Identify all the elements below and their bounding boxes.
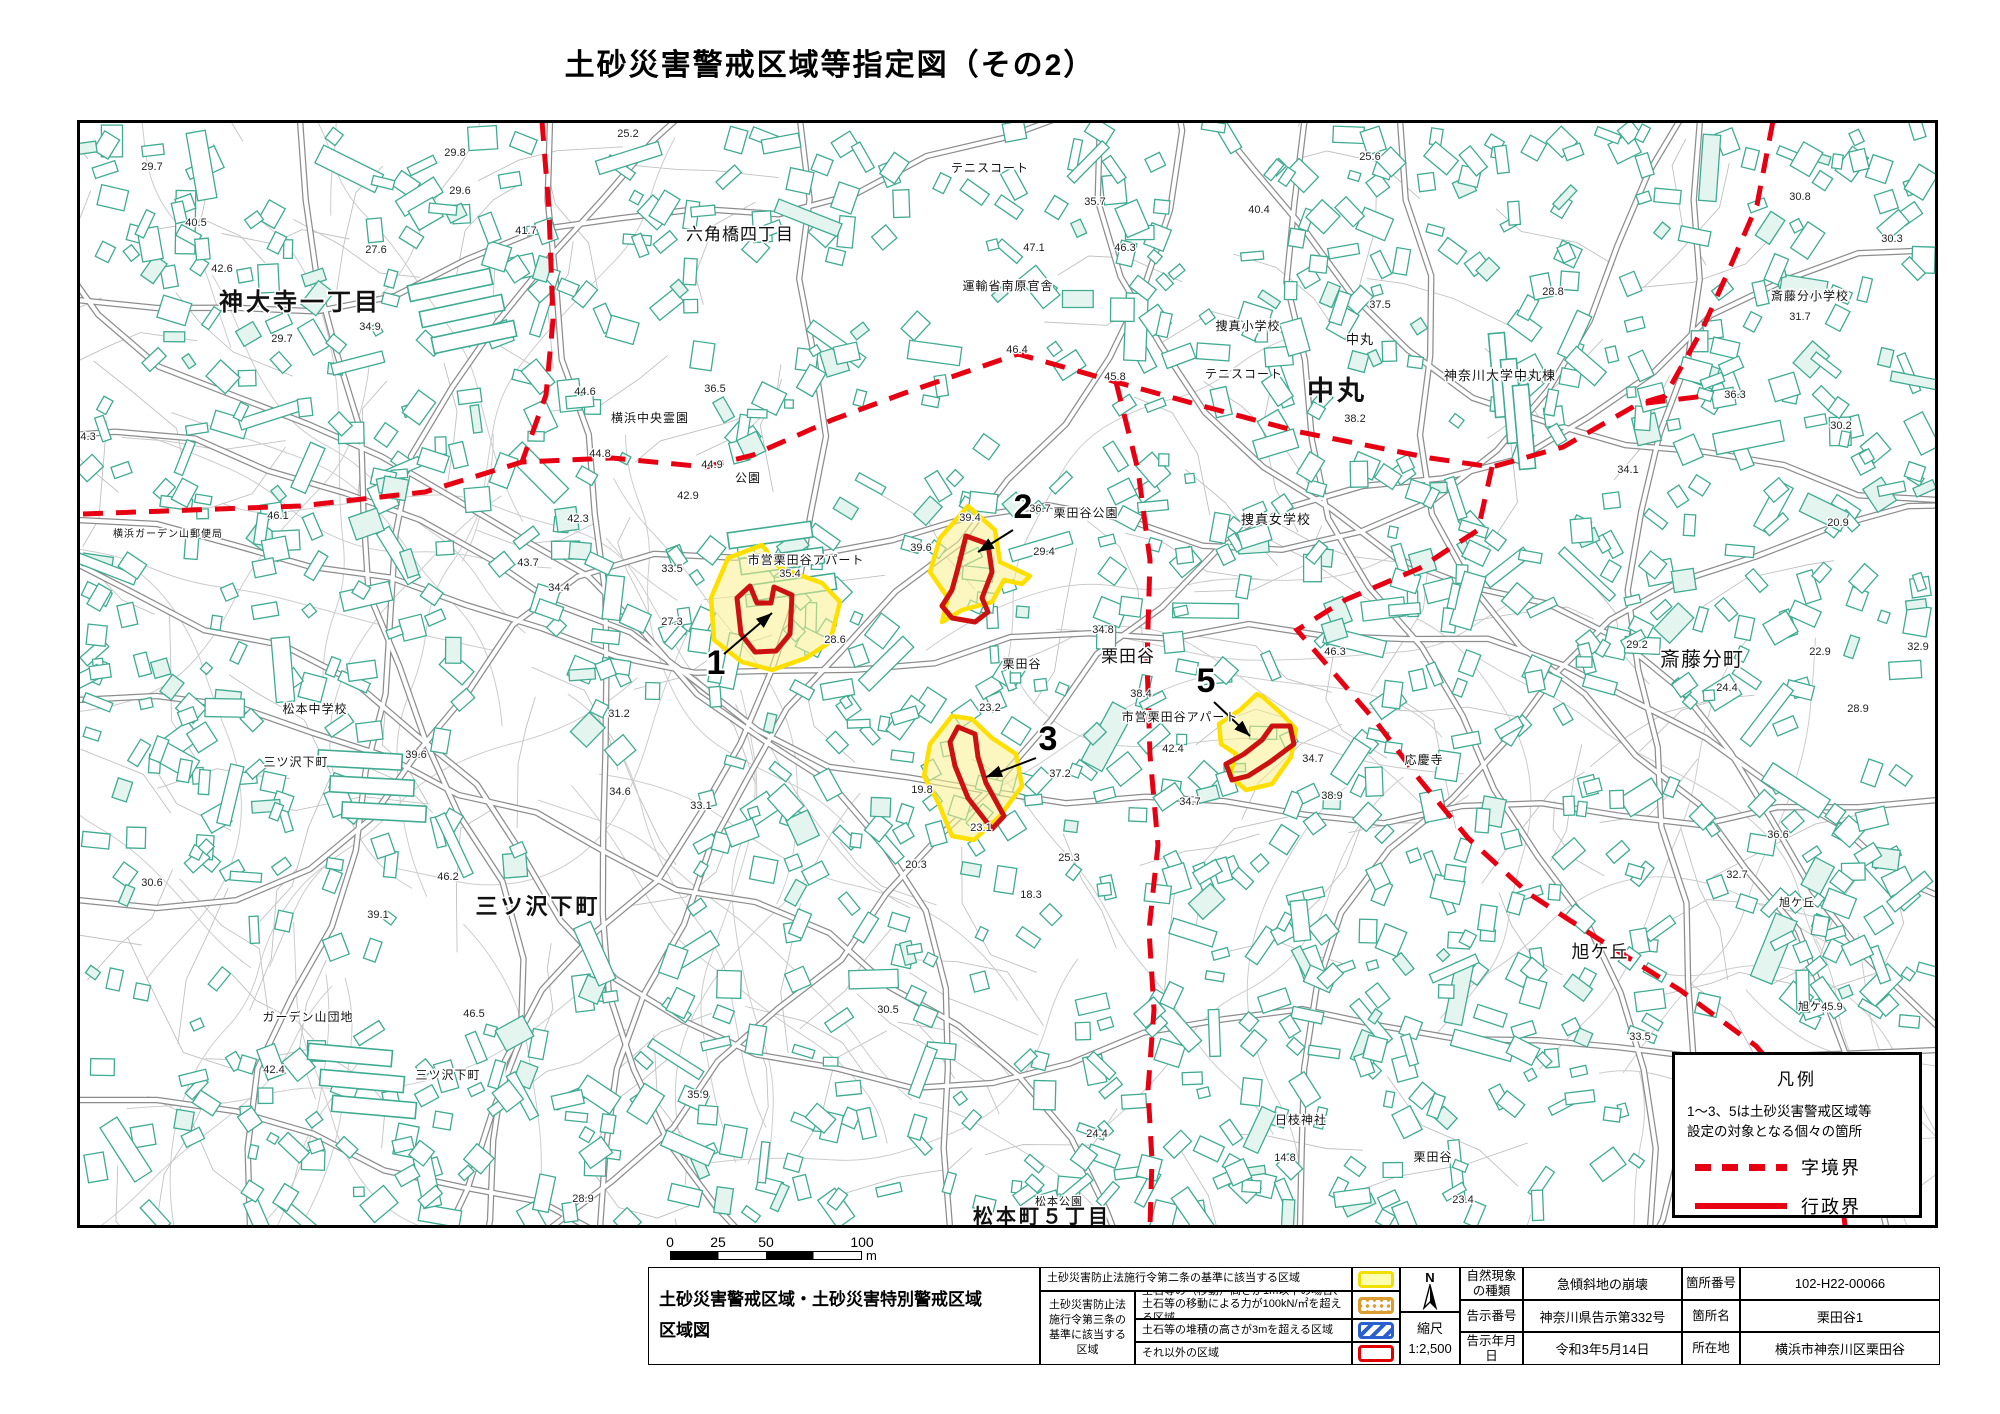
spot-height: 42.4	[263, 1064, 284, 1076]
place-label: 松本町５丁目	[973, 1205, 1111, 1228]
field-label: 自然現象の種類	[1460, 1267, 1523, 1300]
field-value: 急傾斜地の崩壊	[1523, 1267, 1682, 1300]
spot-height: 34.1	[1617, 464, 1638, 476]
place-label: テニスコート	[951, 161, 1029, 175]
spot-height: 32.9	[1907, 641, 1928, 653]
law3-row-swatch-cell	[1352, 1342, 1400, 1365]
field-label: 所在地	[1682, 1332, 1740, 1365]
spot-height: 40.4	[1248, 204, 1269, 216]
place-label: 公園	[735, 471, 761, 485]
scale-tick: 25	[710, 1234, 726, 1250]
spot-height: 33.5	[1629, 1031, 1650, 1043]
spot-height: 20.9	[1827, 517, 1848, 529]
spot-height: 36.7	[1029, 503, 1050, 515]
spot-height: 34.6	[609, 786, 630, 798]
spot-height: 37.2	[1049, 768, 1070, 780]
place-label: 栗田谷公園	[1053, 506, 1118, 520]
spot-height: 23.4	[1452, 1194, 1473, 1206]
legend-item-solid: 行政界	[1695, 1193, 1919, 1219]
spot-height: 42.3	[567, 513, 588, 525]
spot-height: 46.3	[1114, 242, 1135, 254]
place-label: 栗田谷	[1002, 657, 1041, 671]
place-label: 市営栗田谷アパート	[748, 552, 865, 567]
spot-height: 46.2	[437, 871, 458, 883]
spot-height: 35.7	[1084, 196, 1105, 208]
spot-height: 34.7	[1302, 753, 1323, 765]
place-label: 六角橋四丁目	[686, 225, 794, 244]
spot-height: 38.9	[1321, 790, 1342, 802]
spot-height: 23.1	[970, 822, 991, 834]
spot-height: 34.7	[1179, 796, 1200, 808]
legend-note: 1～3、5は土砂災害警戒区域等 設定の対象となる個々の箇所	[1687, 1102, 1911, 1141]
spot-height: 39.1	[367, 909, 388, 921]
north-arrow-icon	[1421, 1284, 1439, 1310]
doc-title-cell: 土砂災害警戒区域・土砂災害特別警戒区域 区域図	[648, 1267, 1040, 1365]
place-label: 旭ケ丘	[1779, 895, 1815, 909]
spot-height: 34.4	[548, 582, 569, 594]
spot-height: 38.4	[1130, 688, 1151, 700]
scale-label: 縮尺	[1417, 1319, 1443, 1339]
spot-height: 42.6	[211, 263, 232, 275]
spot-height: 23.2	[979, 702, 1000, 714]
spot-height: 39.4	[959, 512, 980, 524]
scale-cell: 縮尺 1:2,500	[1400, 1312, 1460, 1365]
law2-text-cell: 土砂災害防止法施行令第二条の基準に該当する区域	[1040, 1267, 1352, 1291]
place-label: 栗田谷	[1101, 647, 1155, 666]
red-zone-swatch-icon	[1358, 1345, 1394, 1362]
law3-row-text: それ以外の区域	[1135, 1342, 1352, 1365]
spot-height: 18.3	[1020, 889, 1041, 901]
spot-height: 47.1	[1023, 242, 1044, 254]
spot-height: 33.5	[661, 563, 682, 575]
spot-height: 14.8	[1274, 1152, 1295, 1164]
place-label: 中丸	[1307, 376, 1367, 406]
spot-height: 37.5	[1369, 299, 1390, 311]
place-label: テニスコート	[1205, 367, 1283, 381]
spot-height: 31.2	[608, 708, 629, 720]
place-label: ガーデン山団地	[262, 1009, 353, 1024]
spot-height: 34.8	[1092, 624, 1113, 636]
spot-height: 27.3	[661, 616, 682, 628]
law3-row-swatch-cell	[1352, 1291, 1400, 1319]
spot-height: 29.8	[444, 147, 465, 159]
zone-number-3: 3	[1039, 720, 1058, 758]
yellow-zone-swatch-icon	[1358, 1271, 1394, 1288]
dashed-boundary-line-icon	[1695, 1164, 1787, 1171]
place-label: 斎藤分町	[1660, 648, 1744, 671]
place-label: 三ツ沢下町	[475, 894, 600, 919]
spot-height: 45.9	[1821, 1001, 1842, 1013]
place-label: 三ツ沢下町	[263, 755, 328, 769]
spot-height: 46.4	[1006, 344, 1027, 356]
field-label: 箇所名	[1682, 1300, 1740, 1332]
place-label: 横浜ガーデン山郵便局	[113, 527, 223, 540]
legend-title: 凡例	[1675, 1065, 1919, 1090]
spot-height: 44.9	[701, 459, 722, 471]
solid-boundary-label: 行政界	[1801, 1193, 1861, 1219]
spot-height: 22.9	[1809, 646, 1830, 658]
spot-height: 25.6	[1359, 151, 1380, 163]
spot-height: 24.4	[1086, 1128, 1107, 1140]
place-label: 三ツ沢下町	[415, 1068, 480, 1082]
spot-height: 39.6	[910, 542, 931, 554]
scale-bar-graphic	[670, 1251, 862, 1260]
orange-zone-swatch-icon	[1358, 1297, 1394, 1314]
spot-height: 28.9	[572, 1193, 593, 1205]
spot-height: 29.6	[449, 185, 470, 197]
field-value: 令和3年5月14日	[1523, 1332, 1682, 1365]
spot-height: 30.6	[141, 877, 162, 889]
spot-height: 36.5	[704, 383, 725, 395]
place-label: 神大寺一丁目	[219, 289, 381, 316]
spot-height: 44.6	[574, 386, 595, 398]
north-cell: N	[1400, 1267, 1460, 1312]
place-label: 中丸	[1346, 332, 1374, 347]
spot-height: 27.6	[365, 244, 386, 256]
spot-height: 29.2	[1626, 639, 1647, 651]
spot-height: 46.5	[463, 1008, 484, 1020]
place-label: 斎藤分小学校	[1771, 288, 1849, 303]
spot-height: 30.3	[1881, 233, 1902, 245]
spot-height: 42.9	[677, 490, 698, 502]
spot-height: 28.9	[1847, 703, 1868, 715]
spot-height: 36.3	[1724, 389, 1745, 401]
spot-height: 42.4	[1162, 743, 1183, 755]
place-label: 捜真小学校	[1215, 318, 1280, 333]
spot-height: 29.7	[271, 333, 292, 345]
spot-height: 29.7	[141, 161, 162, 173]
legend-note-line1: 1～3、5は土砂災害警戒区域等	[1687, 1104, 1872, 1119]
zone-number-1: 1	[707, 644, 726, 682]
place-label: 捜真女学校	[1241, 512, 1311, 527]
spot-height: 28.8	[1542, 286, 1563, 298]
spot-height: 38.2	[1344, 413, 1365, 425]
law3-row-swatch-cell	[1352, 1319, 1400, 1342]
doc-title: 土砂災害警戒区域・土砂災害特別警戒区域 区域図	[649, 1285, 982, 1346]
blue-zone-swatch-icon	[1358, 1322, 1394, 1339]
map-legend: 凡例 1～3、5は土砂災害警戒区域等 設定の対象となる個々の箇所 字境界 行政界	[1672, 1052, 1922, 1218]
spot-height: 25.3	[1058, 852, 1079, 864]
law3-row-text: 土石等の堆積の高さが3mを超える区域	[1135, 1319, 1352, 1342]
doc-title-line1: 土砂災害警戒区域・土砂災害特別警戒区域	[659, 1290, 982, 1309]
page: 土砂災害警戒区域等指定図（その2） 1235神大寺一丁目六角橋四丁目テニスコート…	[0, 0, 2000, 1414]
spot-height: 32.7	[1726, 869, 1747, 881]
spot-height: 44.3	[74, 431, 95, 443]
place-label: 旭ケ丘	[1572, 942, 1629, 962]
field-label: 告示番号	[1460, 1300, 1523, 1332]
field-value: 栗田谷1	[1740, 1300, 1940, 1332]
scale-tick: 50	[758, 1234, 774, 1250]
law3-label: 土砂災害防止法施行令第三条の基準に該当する区域	[1049, 1298, 1126, 1357]
spot-height: 30.2	[1830, 420, 1851, 432]
place-label: 栗田谷	[1413, 1150, 1452, 1164]
spot-height: 19.8	[911, 784, 932, 796]
spot-height: 31.7	[1789, 311, 1810, 323]
field-value: 102-H22-00066	[1740, 1267, 1940, 1300]
spot-height: 28.6	[824, 634, 845, 646]
spot-height: 24.4	[1716, 682, 1737, 694]
spot-height: 44.8	[589, 448, 610, 460]
spot-height: 30.5	[877, 1004, 898, 1016]
spot-height: 35.9	[687, 1089, 708, 1101]
spot-height: 30.8	[1789, 191, 1810, 203]
place-label: 日枝神社	[1275, 1112, 1327, 1127]
law2-text: 土砂災害防止法施行令第二条の基準に該当する区域	[1041, 1272, 1300, 1285]
place-label: 横浜中央霊園	[611, 410, 689, 425]
spot-height: 41.7	[515, 225, 536, 237]
spot-height: 20.3	[905, 859, 926, 871]
spot-height: 34.9	[359, 321, 380, 333]
law2-swatch-cell	[1352, 1267, 1400, 1291]
place-label: 神奈川大学中丸棟	[1444, 368, 1556, 383]
spot-height: 29.4	[1033, 546, 1054, 558]
field-label: 箇所番号	[1682, 1267, 1740, 1300]
doc-title-line2: 区域図	[659, 1321, 710, 1340]
spot-height: 46.1	[267, 510, 288, 522]
scale-bar: 02550100 m	[660, 1234, 890, 1270]
north-label: N	[1425, 1271, 1434, 1284]
dashed-boundary-label: 字境界	[1801, 1154, 1861, 1180]
solid-boundary-line-icon	[1695, 1203, 1787, 1209]
legend-note-line2: 設定の対象となる個々の箇所	[1687, 1124, 1862, 1139]
place-label: 応慶寺	[1404, 753, 1443, 767]
field-label: 告示年月日	[1460, 1332, 1523, 1365]
scale-tick: 0	[666, 1234, 674, 1250]
spot-height: 25.2	[617, 128, 638, 140]
spot-height: 46.3	[1324, 646, 1345, 658]
scale-unit: m	[866, 1248, 877, 1263]
spot-height: 45.8	[1104, 371, 1125, 383]
field-value: 横浜市神奈川区栗田谷	[1740, 1332, 1940, 1365]
spot-height: 33.1	[690, 800, 711, 812]
law3-label-cell: 土砂災害防止法施行令第三条の基準に該当する区域	[1040, 1291, 1135, 1365]
spot-height: 40.5	[185, 217, 206, 229]
legend-item-dashed: 字境界	[1695, 1154, 1919, 1180]
scale-value: 1:2,500	[1408, 1339, 1451, 1359]
zone-number-5: 5	[1197, 662, 1216, 700]
place-label: 松本中学校	[282, 701, 347, 716]
spot-height: 36.6	[1767, 829, 1788, 841]
field-value: 神奈川県告示第332号	[1523, 1300, 1682, 1332]
place-label: 運輸省南原官舎	[962, 278, 1053, 293]
spot-height: 39.6	[405, 749, 426, 761]
spot-height: 35.4	[779, 568, 800, 580]
law3-row-text: 土石等の（移動）高さが1m以下の場合、土石等の移動による力が100kN/㎡を超え…	[1135, 1291, 1352, 1319]
place-label: 市営栗田谷アパート	[1122, 709, 1239, 724]
spot-height: 43.7	[517, 557, 538, 569]
